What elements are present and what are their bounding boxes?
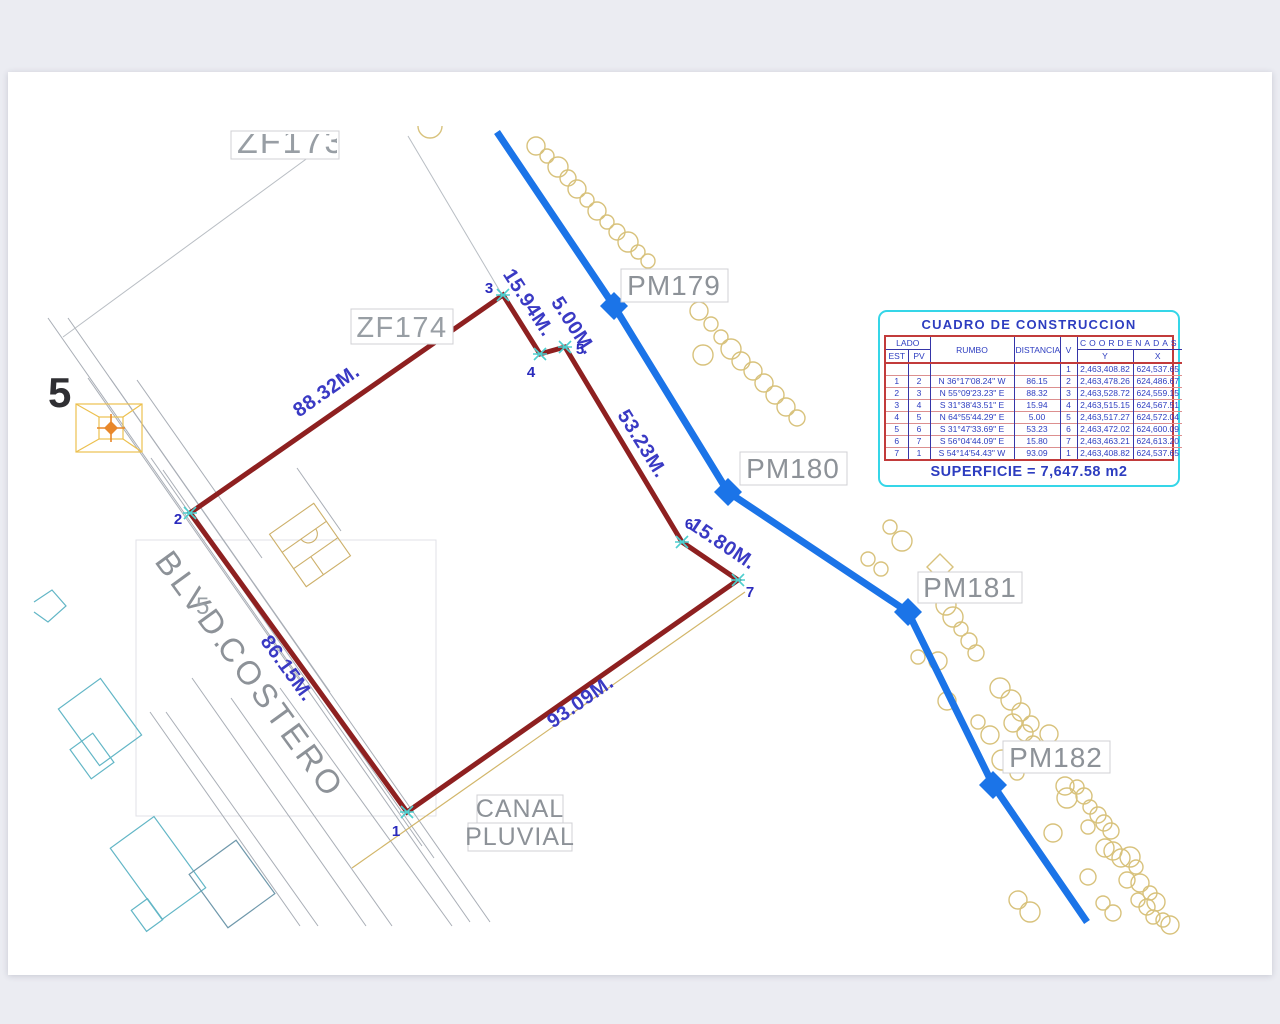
- vegetation-circles: [527, 137, 1179, 934]
- pluvial-text: PLUVIAL: [465, 823, 575, 851]
- leader-lines: [63, 126, 745, 868]
- table-row: 12,463,408.82 624,537.65: [886, 363, 1182, 376]
- drawing-sheet: ZF173 ZF174 PM179 PM180 PM181 PM182 CANA…: [8, 72, 1272, 975]
- header-v: V: [1060, 337, 1077, 363]
- street-number-small: 5: [196, 593, 209, 620]
- pm181-label: PM181: [918, 572, 1022, 603]
- vertex-2: 2: [174, 511, 182, 528]
- screenshot-root: { "drawing": { "labels": { "zone_back": …: [0, 0, 1280, 1024]
- header-est: EST: [886, 350, 908, 364]
- vertex-1: 1: [392, 823, 400, 840]
- canal-pluvial-label: CANAL PLUVIAL: [465, 795, 575, 851]
- header-pv: PV: [908, 350, 930, 364]
- zf173-text: ZF173: [237, 123, 345, 161]
- canal-text: CANAL: [476, 795, 564, 823]
- dimension-labels: 88.32M. 15.94M. 5.00M. 53.23M. 15.80M. 9…: [256, 265, 760, 733]
- pm181-text: PM181: [923, 572, 1017, 603]
- vertex-markers: [183, 289, 745, 818]
- blvd-costero-label: BLVD. COSTERO: [148, 544, 352, 806]
- vertex-6: 6: [685, 516, 693, 533]
- pm179-label: PM179: [621, 269, 728, 302]
- table-row: 12 N 36°17'08.24" W86.15 22,463,478.26 6…: [886, 376, 1182, 388]
- zone-label-zf173: ZF173: [231, 123, 345, 161]
- pm182-label: PM182: [1003, 741, 1110, 773]
- vertex-7: 7: [746, 584, 754, 601]
- coordinates-table: LADO RUMBO DISTANCIA V COORDENADAS EST P…: [886, 337, 1182, 459]
- construction-table: CUADRO DE CONSTRUCCION LADO RUMBO DISTAN…: [878, 310, 1180, 487]
- dim-88-32: 88.32M.: [289, 360, 364, 421]
- vertex-4: 4: [527, 364, 536, 381]
- header-rumbo: RUMBO: [930, 337, 1014, 363]
- table-title: CUADRO DE CONSTRUCCION: [884, 315, 1174, 335]
- table-row: 23 N 55°09'23.23" E88.32 32,463,528.72 6…: [886, 388, 1182, 400]
- header-distancia: DISTANCIA: [1014, 337, 1060, 363]
- table-row: 56 S 31°47'33.69" E53.23 62,463,472.02 6…: [886, 424, 1182, 436]
- superficie-label: SUPERFICIE = 7,647.58 m2: [884, 461, 1174, 481]
- pm180-label: PM180: [740, 452, 847, 485]
- vertex-numbers: 1 2 3 4 5 6 7: [174, 280, 754, 840]
- header-x: X: [1133, 350, 1182, 364]
- table-row: 45 N 64°55'44.29" E5.00 52,463,517.27 62…: [886, 412, 1182, 424]
- pm179-text: PM179: [627, 270, 721, 301]
- vertex-3: 3: [485, 280, 493, 297]
- structure-symbol: [76, 404, 142, 452]
- header-lado: LADO: [886, 337, 930, 350]
- dim-93-09: 93.09M.: [543, 671, 618, 732]
- zone-label-zf174: ZF174: [351, 309, 453, 344]
- header-coordenadas: COORDENADAS: [1077, 337, 1182, 350]
- partial-tree-arc: [418, 126, 442, 138]
- building-tan: [270, 503, 351, 586]
- street-number-large: 5: [48, 369, 71, 416]
- table-row: 67 S 56°04'44.09" E15.80 72,463,463.21 6…: [886, 436, 1182, 448]
- vertex-5: 5: [576, 341, 584, 358]
- table-row: 34 S 31°38'43.51" E15.94 42,463,515.15 6…: [886, 400, 1182, 412]
- pm180-text: PM180: [746, 453, 840, 484]
- table-row: 71 S 54°14'54.43" W93.09 12,463,408.82 6…: [886, 448, 1182, 460]
- header-y: Y: [1077, 350, 1133, 364]
- pm182-text: PM182: [1009, 742, 1103, 773]
- dim-15-80: 15.80M.: [685, 514, 760, 575]
- survey-drawing: ZF173 ZF174 PM179 PM180 PM181 PM182 CANA…: [8, 72, 1272, 975]
- canal-line: [497, 132, 1087, 922]
- symbol-center-diamond: [104, 421, 118, 435]
- zf174-text: ZF174: [356, 312, 447, 344]
